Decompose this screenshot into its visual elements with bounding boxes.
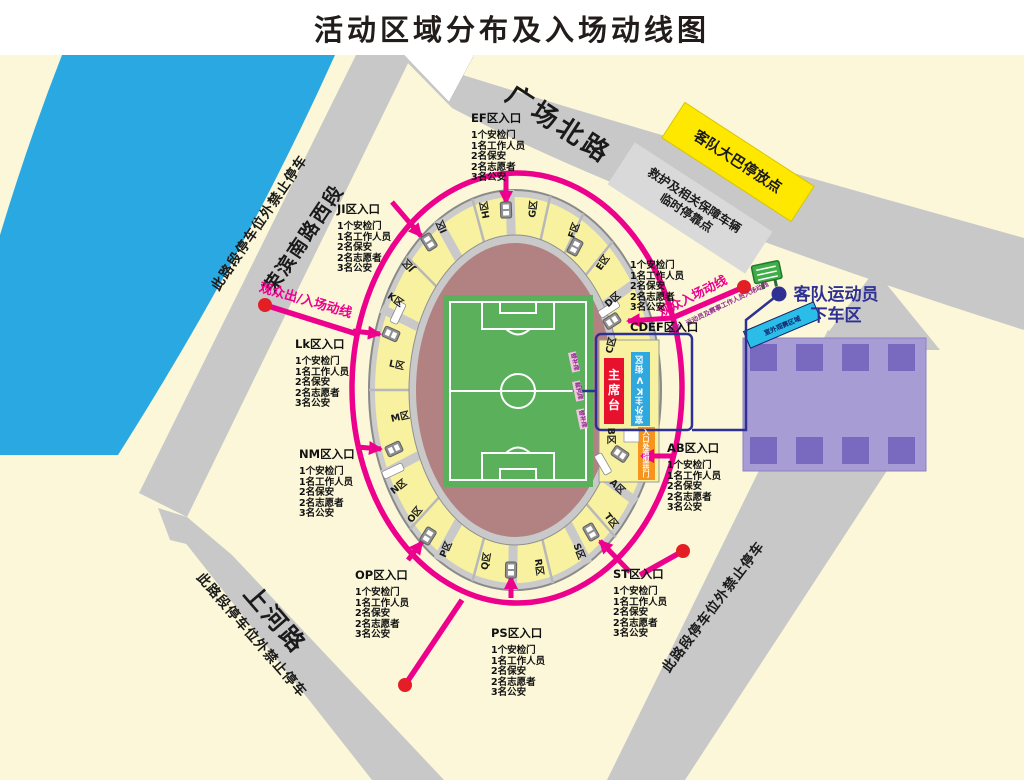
section-label-g: G区 — [524, 200, 540, 219]
flow-endpoint-dot — [398, 678, 412, 692]
arch-label: 入口处造型拱门 — [641, 429, 651, 478]
entrance-info-ab: AB区入口 1个安检门 1名工作人员 2名保安 2名志愿者 3名公安 — [667, 440, 721, 514]
section-label-r: R区 — [532, 558, 548, 577]
dropoff-line1: 客队运动员 — [794, 285, 879, 306]
entrance-title: AB区入口 — [667, 440, 721, 456]
entrance-line: 3名公安 — [491, 688, 545, 699]
entrance-info-cdef: 1个安检门 1名工作人员 2名保安 2名志愿者 3名公安 CDEF区入口 — [630, 261, 698, 335]
entrance-line: 3名公安 — [355, 630, 409, 641]
parking-stall — [842, 344, 869, 371]
entrance-line: 2名保安 — [630, 282, 698, 293]
entrance-line: 2名保安 — [471, 152, 525, 163]
entrance-title: Lk区入口 — [295, 336, 349, 352]
parking-stall — [888, 344, 915, 371]
parking-stall — [750, 344, 777, 371]
entrance-title: NM区入口 — [299, 446, 355, 462]
entrance-line: 1个安检门 — [471, 131, 525, 142]
entrance-title: JI区入口 — [337, 201, 391, 217]
section-label-h: H区 — [476, 200, 493, 220]
flow-endpoint-dot — [258, 298, 272, 312]
entrance-line: 1个安检门 — [295, 357, 349, 368]
flow-endpoint-dot — [676, 544, 690, 558]
entrance-line: 3名公安 — [337, 264, 391, 275]
entrance-line: 3名公安 — [471, 173, 525, 184]
dropoff-line2: 下车区 — [794, 306, 879, 327]
entrance-line: 3名公安 — [630, 303, 698, 314]
section-label-b: B区 — [605, 428, 619, 445]
entrance-title: OP区入口 — [355, 567, 409, 583]
entrance-info-st: ST区入口 1个安检门 1名工作人员 2名保安 2名志愿者 3名公安 — [613, 566, 667, 640]
entrance-line: 2名保安 — [613, 608, 667, 619]
parking-stall — [750, 437, 777, 464]
entrance-line: 2名保安 — [337, 243, 391, 254]
entrance-line: 2名保安 — [295, 378, 349, 389]
entrance-title: EF区入口 — [471, 110, 525, 126]
kv-zone-label: 室外主KV街区 — [634, 354, 646, 424]
parking-stall — [796, 344, 823, 371]
entrance-line: 1个安检门 — [355, 588, 409, 599]
entrance-line: 2名保安 — [491, 667, 545, 678]
entrance-info-ji: JI区入口 1个安检门 1名工作人员 2名保安 2名志愿者 3名公安 — [337, 201, 391, 275]
entrance-line: 1个安检门 — [630, 261, 698, 272]
entrance-info-lk: Lk区入口 1个安检门 1名工作人员 2名保安 2名志愿者 3名公安 — [295, 336, 349, 410]
entrance-title: ST区入口 — [613, 566, 667, 582]
parking-stall — [888, 437, 915, 464]
parking-stall — [796, 437, 823, 464]
entrance-line: 1个安检门 — [337, 222, 391, 233]
entrance-line: 3名公安 — [299, 509, 355, 520]
entrance-line: 1个安检门 — [299, 467, 355, 478]
entrance-line: 2名保安 — [299, 488, 355, 499]
page-title: 活动区域分布及入场动线图 — [0, 0, 1024, 55]
dropoff-label: 客队运动员 下车区 — [794, 285, 879, 327]
entrance-line: 3名公安 — [613, 629, 667, 640]
entrance-info-ps: PS区入口 1个安检门 1名工作人员 2名保安 2名志愿者 3名公安 — [491, 625, 545, 699]
event-map: 活动区域分布及入场动线图 广场北路 荣滨南路西段 上河路 此路段停车位外禁止停车… — [0, 0, 1024, 780]
entrance-line: 1个安检门 — [667, 461, 721, 472]
entrance-line: 1个安检门 — [613, 587, 667, 598]
entrance-line: 2名保安 — [667, 482, 721, 493]
parking-lot — [743, 338, 926, 471]
dropoff-dot — [772, 287, 787, 302]
entrance-title: PS区入口 — [491, 625, 545, 641]
entrance-line: 3名公安 — [667, 503, 721, 514]
entrance-line: 3名公安 — [295, 399, 349, 410]
soccer-field — [443, 295, 593, 487]
entrance-info-nm: NM区入口 1个安检门 1名工作人员 2名保安 2名志愿者 3名公安 — [299, 446, 355, 520]
entrance-info-ef: EF区入口 1个安检门 1名工作人员 2名保安 2名志愿者 3名公安 — [471, 110, 525, 184]
entrance-title: CDEF区入口 — [630, 319, 698, 335]
parking-stall — [842, 437, 869, 464]
section-label-l: L区 — [388, 356, 406, 373]
rostrum-label: 主席台 — [606, 369, 623, 414]
entrance-line: 1个安检门 — [491, 646, 545, 657]
entrance-info-op: OP区入口 1个安检门 1名工作人员 2名保安 2名志愿者 3名公安 — [355, 567, 409, 641]
entrance-line: 2名保安 — [355, 609, 409, 620]
